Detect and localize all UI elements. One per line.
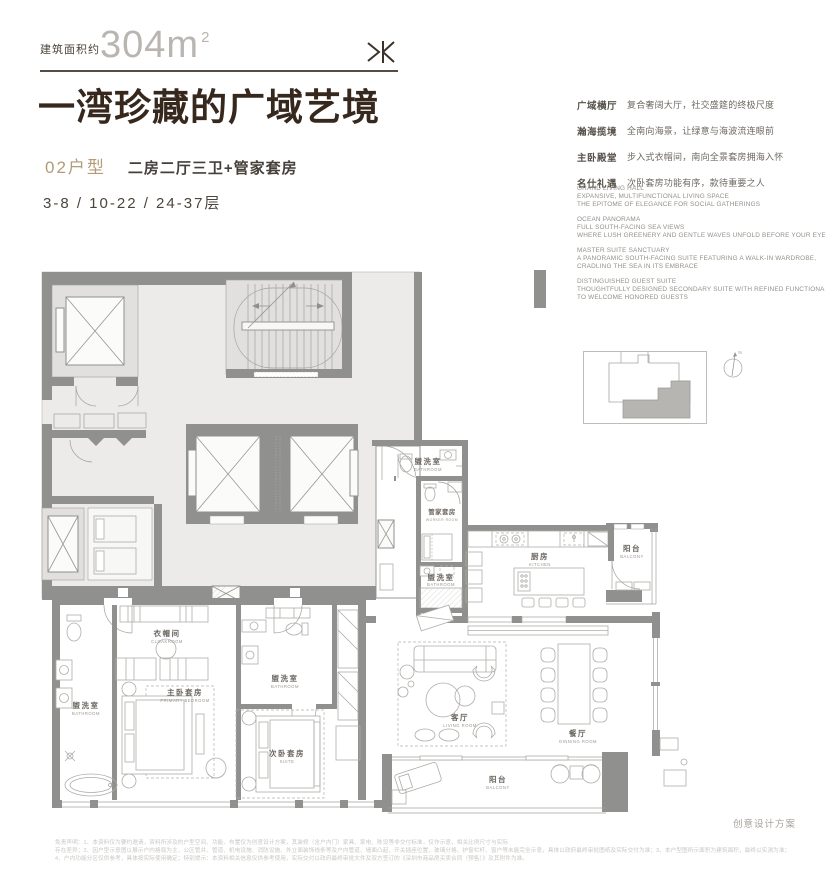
north-label: N <box>738 350 741 355</box>
en-line: FULL SOUTH-FACING SEA VIEWS <box>577 224 812 232</box>
kitchen-balcony <box>606 523 658 604</box>
en-line: OCEAN PANORAMA <box>577 216 812 224</box>
disclaimer-line: 4、户内功能分区仅供参考，具体按实际使用确定；特别提示：本资料相关信息仅供参考使… <box>55 855 795 863</box>
en-line: MASTER SUITE SANCTUARY <box>577 247 812 255</box>
feature-item: 瀚海揽境 全南向海景，让绿意与海波流连眼前 <box>577 124 807 138</box>
room-label-kitchen-balcony-en: BALCONY <box>620 554 644 559</box>
area-prefix-label: 建筑面积约 <box>40 41 100 57</box>
brand-logo-icon <box>366 40 396 69</box>
area-superscript: 2 <box>201 29 209 46</box>
room-label-kitchen-en: KITCHEN <box>529 562 551 567</box>
header-divider <box>40 70 398 72</box>
unit-type-desc: 二房二厅三卫+管家套房 <box>128 157 298 178</box>
en-line: WHERE LUSH GREENERY AND GENTLE WAVES UNF… <box>577 232 812 240</box>
feature-label: 瀚海揽境 <box>577 124 627 138</box>
disclaimer-line: 免责声明：1、本资料仅为要约邀请，资料所涉及的户型空间、功能、布置仅为创意设计方… <box>55 839 795 847</box>
unit-type-row: 02户型 二房二厅三卫+管家套房 <box>45 153 298 178</box>
floor-range: 3-8 / 10-22 / 24-37层 <box>43 192 221 213</box>
feature-label: 广域横厅 <box>577 98 627 112</box>
room-label-dining-en: DINNING ROOM <box>559 739 597 744</box>
feature-paragraph: GRAND LIVING HALL EXPANSIVE, MULTIFUNCTI… <box>577 185 812 209</box>
north-compass-icon: N <box>724 350 742 377</box>
room-label-butler: 管家套房 <box>428 507 456 516</box>
room-label-suite-bath: 盥洗室 <box>272 673 299 683</box>
room-label-bathroom1: 盥洗室 <box>415 456 442 466</box>
scheme-note: 创意设计方案 <box>733 816 796 830</box>
room-label-bathroom2: 盥洗室 <box>428 572 455 582</box>
room-label-suite-en: SUITE <box>280 759 295 764</box>
feature-label: 主卧殿堂 <box>577 150 627 164</box>
feature-paragraph: OCEAN PANORAMA FULL SOUTH-FACING SEA VIE… <box>577 216 812 240</box>
room-label-suite-bath-en: BATHROOM <box>271 684 299 689</box>
brochure-page: 建筑面积约 304m 2 一湾珍藏的广域艺境 02户型 二房二厅三卫+管家套房 … <box>0 0 825 889</box>
room-label-suite: 次卧套房 <box>269 748 305 758</box>
room-label-living-en: LIVING ROOM <box>443 723 476 728</box>
room-label-cloakroom: 衣帽间 <box>154 628 181 638</box>
elevator-shaft <box>186 424 358 524</box>
room-label-butler-en: WORKER ROOM <box>426 518 458 522</box>
room-label-bathroom2-en: BATHROOM <box>427 582 455 587</box>
en-line: A PANORAMIC SOUTH-FACING SUITE FEATURING… <box>577 255 812 263</box>
disclaimer-line: 存在差异；2、因户型示意图以展示户内格局为主，公区管井、管道、机电设施、消防设施… <box>55 847 795 855</box>
en-line: GRAND LIVING HALL <box>577 185 812 193</box>
room-label-master-bath: 盥洗室 <box>73 700 100 710</box>
feature-desc: 步入式衣帽间，南向全景套房拥海入怀 <box>627 150 783 164</box>
disclaimer: 免责声明：1、本资料仅为要约邀请，资料所涉及的户型空间、功能、布置仅为创意设计方… <box>55 839 795 863</box>
feature-item: 广域横厅 复合奢阔大厅，社交盛筵的终极尺度 <box>577 98 807 112</box>
feature-item: 主卧殿堂 步入式衣帽间，南向全景套房拥海入怀 <box>577 150 807 164</box>
suite-wardrobe <box>336 610 360 760</box>
unit-type-code: 02户型 <box>45 153 106 178</box>
room-label-living: 客厅 <box>450 712 469 722</box>
room-label-cloakroom-en: CLOAKROOM <box>151 639 183 644</box>
floor-plan: 盥洗室 BATHROOM 管家套房 WORKER ROOM 盥洗室 BATHRO… <box>40 268 695 825</box>
room-label-kitchen: 厨房 <box>531 551 549 561</box>
room-label-bathroom1-en: BATHROOM <box>414 467 442 472</box>
area-value: 304m <box>100 26 199 64</box>
room-label-balcony-en: BALCONY <box>486 785 510 790</box>
room-label-dining: 餐厅 <box>568 728 587 738</box>
feature-desc: 复合奢阔大厅，社交盛筵的终极尺度 <box>627 98 774 112</box>
page-title: 一湾珍藏的广域艺境 <box>38 77 380 131</box>
en-line: THE EPITOME OF ELEGANCE FOR SOCIAL GATHE… <box>577 201 812 209</box>
stairwell <box>226 272 352 378</box>
room-label-master-bath-en: BATHROOM <box>72 711 100 716</box>
built-area: 建筑面积约 304m 2 <box>40 26 209 64</box>
feature-desc: 全南向海景，让绿意与海波流连眼前 <box>627 124 774 138</box>
room-label-kitchen-balcony: 阳台 <box>623 543 641 553</box>
room-label-balcony: 阳台 <box>489 774 507 784</box>
room-label-primary-bedroom-en: PRIMARY BEDROOM <box>160 698 209 703</box>
core-area <box>42 270 546 601</box>
en-line: EXPANSIVE, MULTIFUNCTIONAL LIVING SPACE <box>577 193 812 201</box>
room-label-primary-bedroom: 主卧套房 <box>167 687 203 697</box>
